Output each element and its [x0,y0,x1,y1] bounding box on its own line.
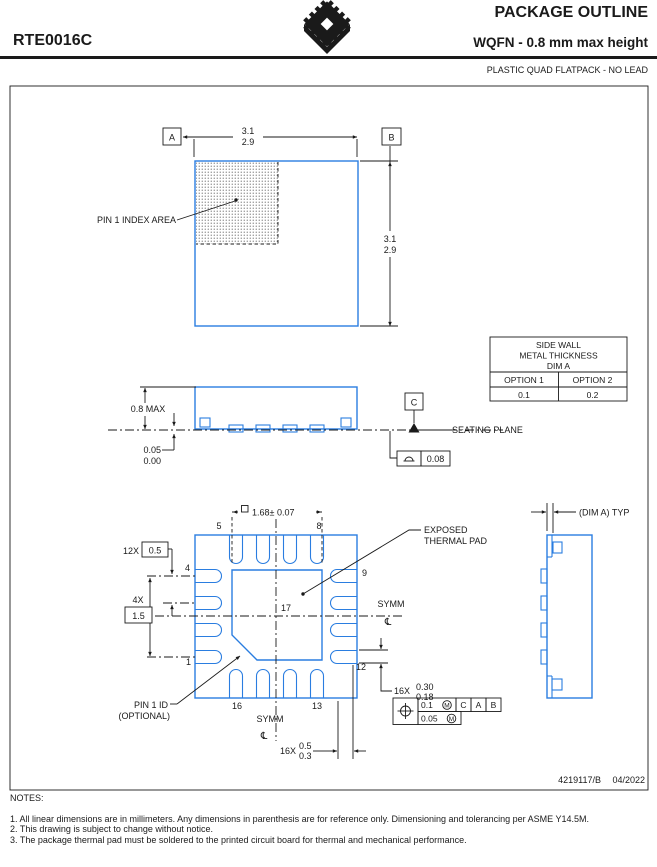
side-wall-table: SIDE WALL METAL THICKNESS DIM A OPTION 1… [490,337,627,401]
package-wall-detail [547,535,592,698]
table-val-option2: 0.2 [587,390,599,400]
body-width-max: 3.1 [242,126,255,136]
centerline-symbol-bottom: ℄ [260,731,268,742]
table-col-option1: OPTION 1 [504,375,544,385]
table-col-option2: OPTION 2 [573,375,613,385]
pin1-index-label: PIN 1 INDEX AREA [97,215,176,225]
thermal-pad-dim: 1.68± 0.07 [252,508,294,518]
flatness-icon [404,457,415,461]
top-view: A B 3.1 2.9 3.1 2.9 PIN 1 INDEX AREA [97,126,401,326]
dim-a-label: (DIM A) TYP [579,508,629,518]
centerline-symbol-right: ℄ [384,617,392,628]
pin-16: 16 [232,701,242,711]
body-height-max: 3.1 [384,234,397,244]
pin1-id-label-2: (OPTIONAL) [118,711,170,721]
pin1-id-label-1: PIN 1 ID [134,700,169,710]
body-height-min: 2.9 [384,245,397,255]
standoff-max: 0.05 [143,445,161,455]
lead-width-count: 16X [394,686,410,696]
lead-width-max: 0.30 [416,682,434,692]
lead-length-count: 16X [280,746,296,756]
pin-13: 13 [312,701,322,711]
notes-title: NOTES: [10,793,610,804]
drawing-number: 4219117/B [558,775,601,785]
position-tolerance: 0.1 [421,700,433,710]
flatness-symbol-cell [397,451,421,466]
side-view: 0.8 MAX 0.05 0.00 C SEATING PLANE 0.08 [108,387,523,466]
pin-5: 5 [216,521,221,531]
pin1-index-area [196,162,278,244]
pin-1: 1 [186,657,191,667]
table-title-1: SIDE WALL [536,340,581,350]
span-count: 4X [132,595,143,605]
package-body-side [195,387,357,429]
datum-a-label: A [169,133,175,143]
revision-date: 04/2022 [612,775,645,785]
position-datum-1: C [460,700,466,710]
span-value: 1.5 [132,611,145,621]
table-title-3: DIM A [547,361,570,371]
position-tolerance-frame: 0.1 M C A B 0.05 M [393,698,501,725]
body-width-min: 2.9 [242,137,255,147]
position-datum-3: B [491,700,497,710]
standoff-min: 0.00 [143,456,161,466]
pitch-count: 12X [123,546,139,556]
symm-label-bottom: SYMM [257,714,284,724]
note-1: 1. All linear dimensions are in millimet… [10,814,610,825]
lead-length-min: 0.3 [299,751,312,761]
note-3: 3. The package thermal pad must be solde… [10,835,610,846]
position-symbol [398,703,414,719]
coplanarity-tolerance: 0.05 [421,714,438,724]
note-2: 2. This drawing is subject to change wit… [10,824,610,835]
exposed-thermal-pad [232,570,322,660]
max-height-dim: 0.8 MAX [131,404,166,414]
lead-length-max: 0.5 [299,741,312,751]
pitch-value: 0.5 [149,546,162,556]
pin-9: 9 [362,568,367,578]
symm-label-right: SYMM [378,599,405,609]
seating-plane-label: SEATING PLANE [452,425,523,435]
pin-4: 4 [185,563,190,573]
notes-section: NOTES: 1. All linear dimensions are in m… [10,793,610,845]
technical-drawing: A B 3.1 2.9 3.1 2.9 PIN 1 INDEX AREA [0,0,657,867]
position-datum-2: A [476,700,482,710]
pin-17: 17 [281,603,291,613]
pin-8: 8 [316,521,321,531]
pin-12: 12 [356,662,366,672]
position-modifier: M [444,703,449,710]
package-outline-page: RTE0016C PACKAGE OUTLINE WQFN - 0.8 mm m… [0,0,657,867]
coplanarity-modifier: M [449,716,454,723]
exposed-pad-label-1: EXPOSED [424,525,468,535]
bottom-view: 1.68± 0.07 5 8 4 1 9 12 16 13 17 12X 0.5… [118,504,501,761]
flatness-tolerance: 0.08 [427,454,445,464]
detail-view: (DIM A) TYP [531,503,629,698]
datum-c-triangle [409,423,420,433]
table-title-2: METAL THICKNESS [519,351,598,361]
datum-c-label: C [411,398,418,408]
table-val-option1: 0.1 [518,390,530,400]
datum-b-label: B [388,133,394,143]
exposed-pad-label-2: THERMAL PAD [424,536,488,546]
